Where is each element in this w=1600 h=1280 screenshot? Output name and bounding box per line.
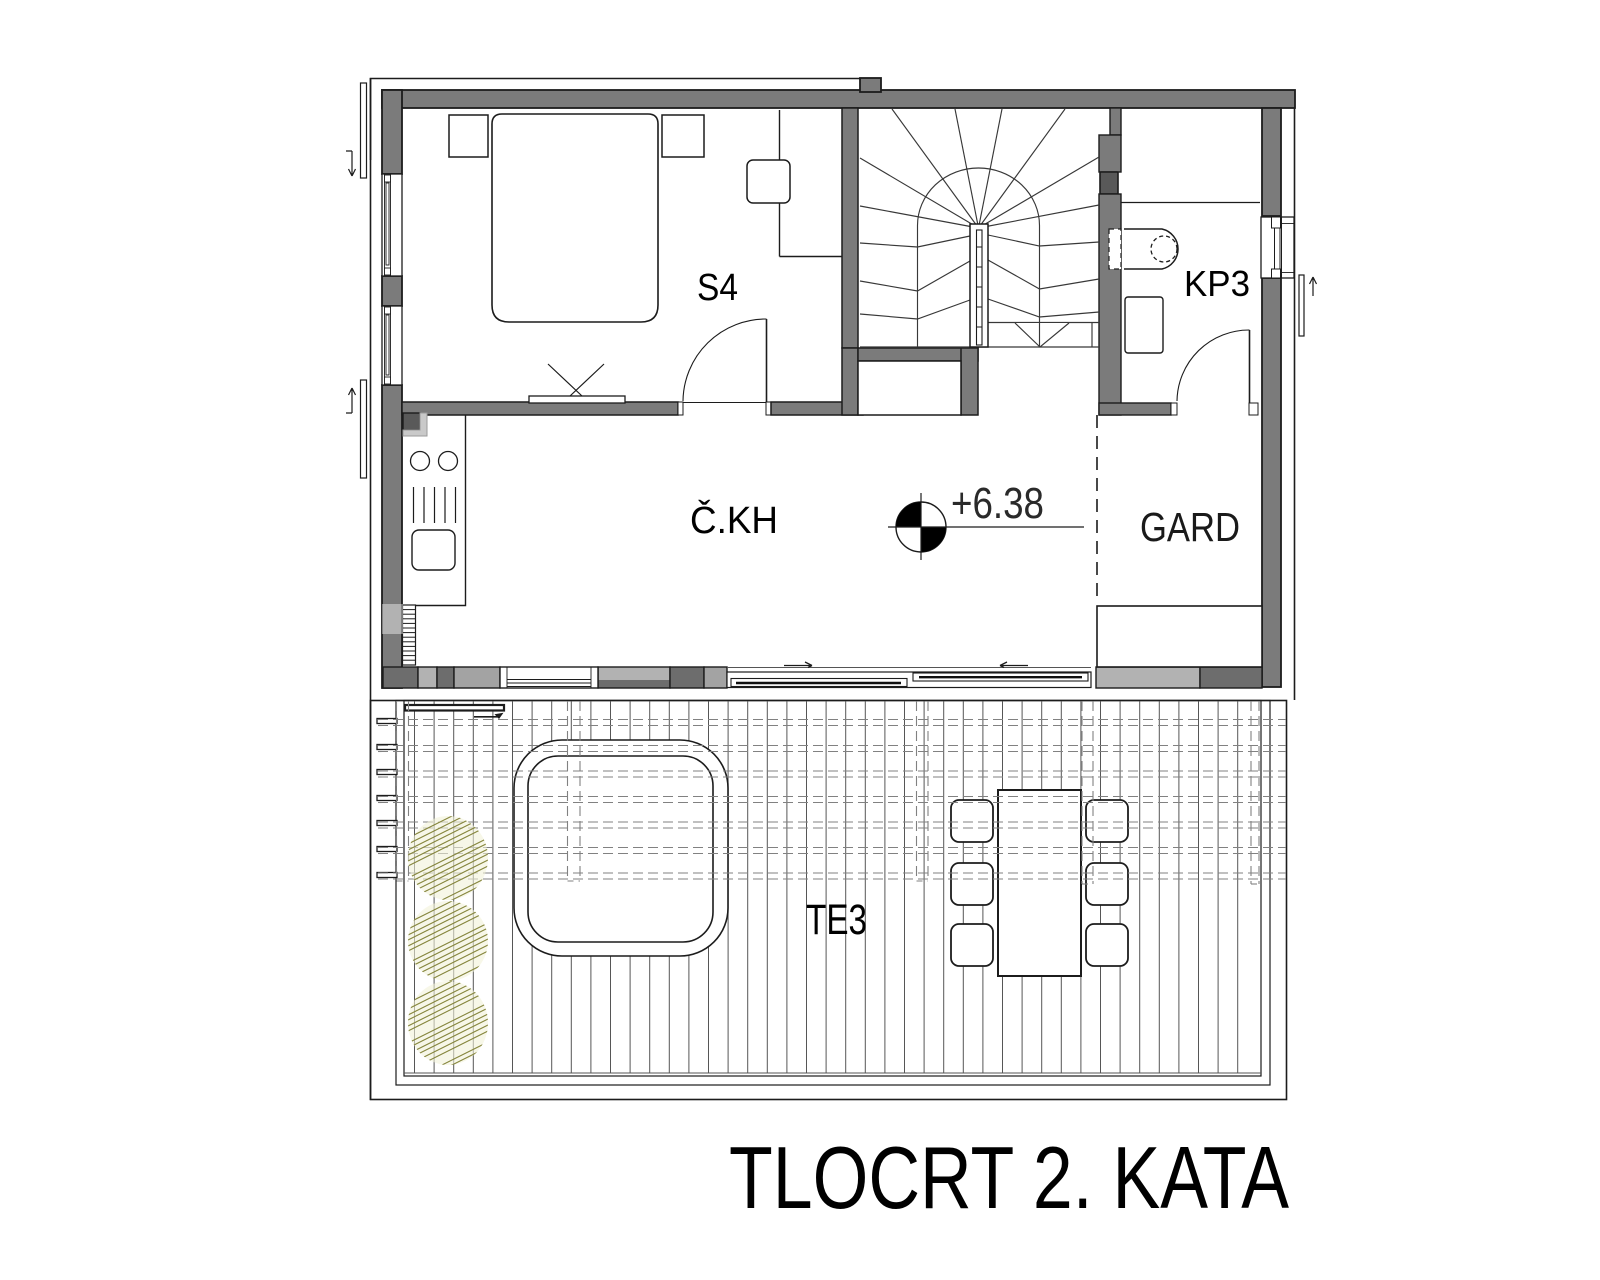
svg-text:GARD: GARD [1140,504,1240,550]
svg-text:+6.38: +6.38 [951,479,1044,528]
svg-text:KP3: KP3 [1184,263,1250,304]
svg-text:Č.KH: Č.KH [690,498,778,542]
svg-text:TE3: TE3 [806,896,867,944]
svg-text:TLOCRT 2. KATA: TLOCRT 2. KATA [729,1128,1289,1227]
svg-text:S4: S4 [697,267,738,309]
